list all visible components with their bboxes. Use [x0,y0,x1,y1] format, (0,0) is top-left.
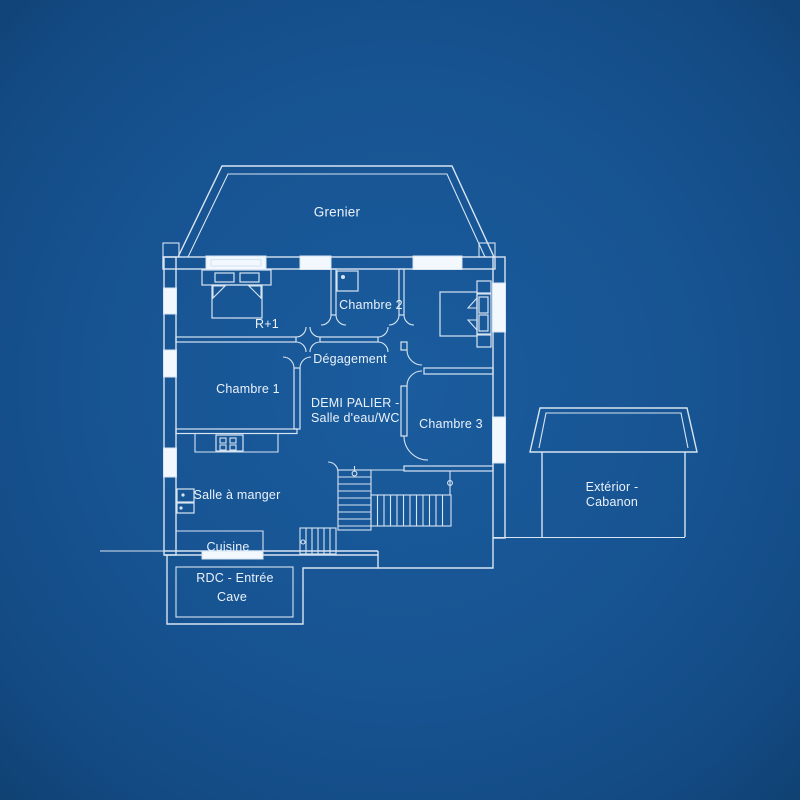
window-left-1 [164,288,177,314]
floor-plan-drawing [0,0,800,800]
blueprint-floor-plan: Grenier R+1 Chambre 2 Chambre 1 Dégageme… [0,0,800,800]
blanket-fold-icon [468,298,477,330]
room-label-salle-a-manger: Salle à manger [194,488,281,502]
pillow-icon [479,297,488,313]
demi-palier-line2: Salle d'eau/WC [311,411,400,426]
demi-palier-line1: DEMI PALIER - [311,396,400,411]
room-label-degagement: Dégagement [313,352,387,366]
stair-start-marker [301,540,305,544]
wc-icon [177,489,194,513]
shed-cabanon [493,408,697,538]
exterior-walls [100,257,505,568]
window-left-2 [164,350,177,377]
room-label-chambre-1: Chambre 1 [216,382,280,396]
room-label-demi-palier: DEMI PALIER - Salle d'eau/WC [311,396,400,426]
door-splay [310,327,320,352]
door-splay [296,327,306,352]
pillow-icon [240,273,259,282]
room-label-rdc-entree: RDC - Entrée [196,571,273,585]
window-top-3 [413,256,462,270]
door-splay [283,357,311,368]
room-label-chambre-3: Chambre 3 [419,417,483,431]
room-label-grenier: Grenier [314,205,360,220]
annex-rdc [167,551,378,624]
roof-corner-post-left [163,243,179,257]
blanket-fold-icon [213,286,261,298]
door-arc [404,436,428,460]
door-splay [389,315,414,325]
windows [164,256,506,477]
stove-icon [216,435,243,451]
nightstand-icon [477,335,491,347]
stair-start-marker [352,471,357,476]
door-splay [321,315,346,325]
window-top-2 [300,256,331,270]
nightstand-icon [477,281,491,293]
staircase [300,466,452,554]
room-label-cave: Cave [217,590,247,604]
room-label-exterieur-cabanon: Extérior - Cabanon [586,480,639,510]
pillow-icon [215,273,234,282]
room-label-chambre-2: Chambre 2 [339,298,403,312]
door-splay [328,462,338,472]
door-openings [283,315,428,472]
single-bed-icon [440,281,491,347]
room-label-cuisine: Cuisine [206,540,249,554]
room-label-r-plus-1: R+1 [255,317,279,331]
window-right-2 [493,417,506,463]
pillow-icon [479,315,488,331]
door-splay [378,327,388,352]
double-bed-icon [202,270,271,318]
sink-icon [337,271,358,291]
cabanon-line2: Cabanon [586,495,639,510]
window-top-1 [206,256,266,270]
door-splay [407,350,422,386]
window-left-3 [164,448,177,477]
cabanon-line1: Extérior - [586,480,639,495]
window-right-1 [493,283,506,332]
